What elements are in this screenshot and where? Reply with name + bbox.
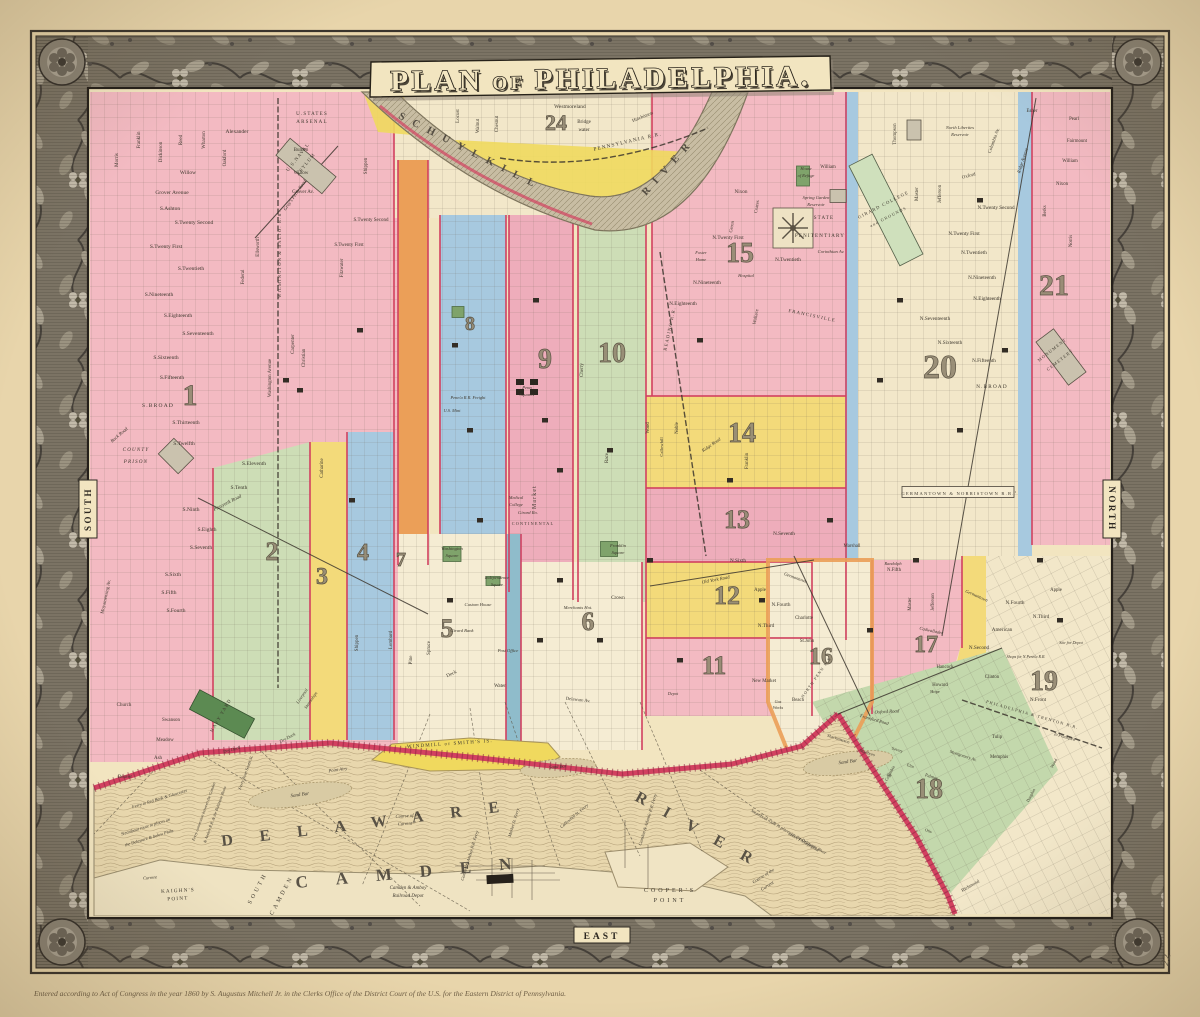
map-label: Willow (180, 170, 196, 176)
map-label: Bridge (577, 120, 591, 125)
map-label: N.Front (1030, 697, 1047, 703)
map-label: Pine (409, 655, 414, 665)
building-mark (1037, 558, 1043, 563)
map-label: Camden & Amboy (390, 886, 428, 891)
building-mark (557, 468, 563, 473)
map-label: Thompson (893, 123, 898, 145)
map-label: St.John (800, 639, 815, 644)
map-label: N.Twentieth (775, 257, 801, 263)
street-grid (347, 432, 394, 740)
building-mark (447, 598, 453, 603)
map-label: House (799, 166, 811, 171)
map-label: Apple (1050, 588, 1062, 593)
map-label: Dickinson (159, 141, 164, 162)
map-label: S.Twentieth (178, 266, 205, 272)
map-label: Wharton (202, 131, 207, 149)
building-mark (697, 338, 703, 343)
map-label: Callowhill (659, 437, 664, 457)
map-label: N.Fifteenth (972, 357, 996, 364)
building-mark (897, 298, 903, 303)
ward-number-11: 11 (702, 651, 727, 680)
map-label: N.Twentieth (961, 250, 987, 256)
map-content: 12345678910111213141516171819202124SCHUY… (90, 85, 1110, 918)
ward-number-13: 13 (724, 505, 750, 534)
map-label: College (509, 502, 523, 507)
building-mark (727, 478, 733, 483)
map-label: Randolph (883, 561, 902, 566)
map-label: Ash (154, 756, 163, 761)
map-label: Crown (611, 596, 625, 601)
map-canvas: 12345678910111213141516171819202124SCHUY… (0, 0, 1200, 1017)
map-label: PRISON (123, 460, 148, 465)
map-label: Independence (484, 575, 509, 580)
map-label: S.Eighth (197, 527, 216, 533)
map-label: Burden (294, 148, 309, 153)
street-grid (213, 442, 310, 740)
compass-east: EAST (584, 932, 621, 942)
map-label: Howard (932, 683, 948, 688)
building-mark (467, 428, 473, 433)
building-mark (533, 298, 539, 303)
map-label: Federal (241, 269, 246, 285)
map-label: WILMINGTON & BALTO. R.R. (277, 210, 282, 298)
map-label: S.Sixteenth (153, 355, 178, 361)
map-label: Reed (179, 134, 184, 145)
map-label: N.Second (969, 645, 990, 651)
landmark-black (487, 874, 513, 883)
map-label: Hospital (737, 273, 755, 278)
building-mark (877, 378, 883, 383)
map-label: Master (915, 187, 920, 201)
street-grid (521, 562, 642, 750)
map-label: Railroad Depot (391, 894, 424, 899)
map-label: S.Tenth (231, 485, 248, 491)
map-label: Esher (1027, 109, 1038, 114)
map-label: of Refuge (798, 173, 815, 178)
map-label: Catharine (320, 458, 325, 478)
map-label: Willow (294, 171, 309, 176)
map-label: Custom House (465, 602, 492, 607)
compass-north: NORTH (1107, 486, 1117, 531)
compass-south: SOUTH (83, 487, 93, 531)
map-label: N.Sixth (730, 558, 746, 564)
map-label: N.Eighteenth (973, 296, 1001, 302)
ward-number-2: 2 (266, 537, 279, 566)
map-label: N.Twenty First (712, 235, 744, 241)
map-label: water (578, 128, 589, 133)
building-mark (977, 198, 983, 203)
map-label: Memphis (990, 755, 1008, 760)
map-label: Washington Avenue (268, 359, 273, 397)
map-label: Home (695, 257, 707, 262)
map-label: N.Seventeenth (920, 316, 951, 322)
building-mark (759, 598, 765, 603)
map-label: U.S. Mint (444, 408, 462, 413)
map-label: Christian (302, 348, 307, 367)
map-label: Jefferson (931, 593, 936, 611)
map-label: S.Eighteenth (164, 313, 193, 319)
penitentiary-hub (790, 225, 796, 231)
map-label: Spring Garden (803, 195, 830, 200)
map-label: S.Twenty Second (354, 218, 389, 223)
map-label: William (1062, 159, 1078, 164)
map-label: Washington (441, 546, 463, 551)
map-label: Post Office (497, 648, 519, 653)
map-label: N.Sixteenth (938, 340, 963, 346)
map-label: N.Nineteenth (968, 275, 996, 281)
map-label: COOPER'S (644, 888, 696, 894)
ward-number-20: 20 (923, 349, 957, 386)
map-label: S.Seventeenth (182, 331, 214, 337)
map-label: Lombard (389, 630, 394, 649)
map-label: Franklin (137, 131, 142, 148)
region-orange-band (398, 160, 428, 565)
map-label: S.BROAD (142, 403, 174, 409)
ward-number-19: 19 (1030, 666, 1058, 697)
ward-number-15: 15 (726, 238, 754, 269)
map-label: Spruce (427, 640, 432, 655)
map-label: Jefferson (938, 184, 943, 203)
map-label: N.Fourth (772, 602, 791, 608)
ward-number-1: 1 (183, 379, 198, 412)
map-label: Church (117, 703, 132, 708)
ward-number-3: 3 (316, 564, 328, 590)
map-label: N.Third (1033, 614, 1050, 620)
building-mark (537, 638, 543, 643)
map-label: Swanson (162, 718, 181, 723)
ward-number-6: 6 (582, 607, 595, 636)
ward-number-17: 17 (914, 632, 938, 658)
ward-number-8: 8 (465, 313, 475, 335)
building-mark (1057, 618, 1063, 623)
map-label: Oakford (223, 149, 228, 166)
ward-number-10: 10 (598, 338, 626, 369)
map-label: Grover Av. (292, 190, 314, 195)
map-label: Current (398, 820, 413, 826)
map-label: Grover Avenue (155, 190, 189, 196)
title-banner: PLANOFPHILADELPHIA. PLANOFPHILADELPHIA. (370, 56, 834, 101)
map-label: Morris (115, 153, 120, 167)
building-mark (597, 638, 603, 643)
map-label: S.Ninth (183, 507, 200, 513)
map-label: N.Fourth (1006, 600, 1025, 606)
street-grid (440, 215, 506, 534)
building-mark (297, 388, 303, 393)
building-mark (677, 658, 683, 663)
map-label: STATE (814, 216, 835, 221)
map-label: Walnut (476, 118, 481, 133)
map-label: N.Fifth (887, 568, 902, 573)
map-label: Ellsworth (256, 237, 261, 257)
map-label: Reservoir (806, 202, 825, 207)
map-label: Hancock (936, 665, 954, 670)
map-label: American (992, 627, 1013, 633)
building-mark (542, 418, 548, 423)
map-label: Depot (667, 691, 679, 696)
map-label: Chesnut (495, 115, 500, 132)
map-label: Norris (1069, 235, 1074, 247)
map-label: Girard Ro. (518, 510, 538, 515)
map-label: Corinthian Av. (818, 249, 845, 254)
map-label: S.Sixth (165, 572, 181, 578)
ward-number-9: 9 (538, 344, 552, 375)
map-label: Franklin (609, 543, 627, 548)
map-label: S.Eleventh (242, 461, 266, 467)
map-label: COUNTY (123, 448, 150, 453)
map-label: Medical (508, 495, 524, 500)
building-mark (557, 578, 563, 583)
building-mark (647, 558, 653, 563)
copyright-line: Entered according to Act of Congress in … (33, 989, 566, 998)
map-label: Noble (675, 422, 680, 434)
map-label: Master (908, 597, 913, 611)
map-label: Fitzwater (340, 258, 345, 277)
building-mark (283, 378, 289, 383)
landmark-green (452, 307, 464, 318)
landmark-gray (830, 190, 846, 203)
map-label: Race (605, 452, 610, 463)
map-label: Merchants Hot. (563, 605, 593, 610)
map-label: GERMANTOWN & NORRISTOWN R.R. (901, 491, 1014, 496)
map-label: PENITENTIARY (795, 234, 845, 239)
map-label: Beaver (118, 775, 132, 780)
map-label: N.Twenty Second (977, 205, 1015, 211)
map-label: Marshall (843, 544, 861, 549)
ward-number-4: 4 (357, 540, 369, 566)
map-label: Locust (456, 109, 461, 123)
building-mark (867, 628, 873, 633)
building-mark (957, 428, 963, 433)
map-label: S.Seventh (190, 545, 212, 551)
map-label: Hope (930, 689, 940, 694)
map-label: Water (494, 684, 506, 689)
map-label: Works (773, 705, 784, 710)
map-label: Pearl (1069, 117, 1080, 122)
map-label: Nixon (735, 189, 748, 195)
map-label: William (820, 165, 836, 170)
map-label: CONTINENTAL (512, 521, 554, 526)
map-label: Cherry (580, 363, 585, 377)
map-label: Clinton (985, 675, 1000, 680)
ward-number-7: 7 (396, 549, 406, 571)
map-label: Fairmount (1067, 139, 1088, 144)
map-label: Carpenter (291, 334, 296, 354)
map-label: Charlotte (795, 616, 813, 621)
map-label: S.Twenty First (150, 244, 183, 250)
map-title: PLANOFPHILADELPHIA. (390, 60, 811, 97)
map-label: Shops for N.Penn'a R.R. (1007, 654, 1046, 659)
building-mark (349, 498, 355, 503)
map-label: S.Twelfth (173, 440, 195, 447)
map-label: ARSENAL (296, 120, 327, 125)
map-label: New Market (752, 679, 777, 684)
map-label: Berks (1043, 205, 1048, 216)
map-label: S.Twenty Second (175, 220, 214, 226)
map-label: S.Fifth (161, 589, 176, 596)
map-label: Nixon (1056, 182, 1069, 187)
ward-number-18: 18 (915, 774, 943, 805)
building-mark (452, 343, 458, 348)
map-label: Meadow (156, 738, 174, 743)
map-label: Tulip (992, 735, 1003, 740)
map-label: N.Twenty First (948, 231, 980, 237)
map-label: Foster (694, 250, 707, 255)
ward-number-21: 21 (1039, 269, 1069, 302)
building-mark (607, 448, 613, 453)
map-label: N.Nineteenth (693, 280, 721, 286)
ward-number-24: 24 (545, 110, 567, 135)
map-label: Square (446, 553, 459, 558)
map-label: Wood (646, 422, 651, 434)
map-label: Shippen (355, 634, 360, 651)
map-label: Girard Bank (450, 628, 474, 633)
map-label: S.Fifteenth (160, 374, 185, 381)
map-page: 12345678910111213141516171819202124SCHUY… (0, 0, 1200, 1017)
ward-number-12: 12 (714, 581, 740, 610)
building-mark (1002, 348, 1008, 353)
map-label: N.BROAD (976, 384, 1008, 390)
map-label: Penn'a R.R. Freight (450, 395, 487, 400)
map-label: Gas (775, 699, 782, 704)
map-label: Square (491, 582, 503, 587)
building-mark (913, 558, 919, 563)
ward-number-14: 14 (728, 418, 756, 449)
map-label: S.Ashton (160, 206, 181, 212)
map-label: Apple (754, 588, 766, 593)
map-label: Shippen (364, 157, 369, 174)
map-label: Alexander (226, 129, 249, 135)
map-label: Squares (520, 392, 535, 397)
map-label: North Liberties (945, 125, 974, 130)
map-label: Market (532, 485, 538, 509)
map-label: S.Fourth (166, 608, 185, 614)
map-label: S.Nineteenth (145, 292, 174, 298)
map-label: N.Seventh (773, 531, 795, 537)
map-label: POINT (167, 895, 189, 902)
building-mark (357, 328, 363, 333)
map-label: POINT (654, 898, 687, 904)
map-label: Penn (521, 385, 532, 390)
map-label: Square (612, 550, 625, 555)
map-label: Franklin (745, 452, 750, 469)
map-label: N.Third (758, 623, 775, 629)
building-mark (477, 518, 483, 523)
map-label: S.Thirteenth (172, 420, 200, 426)
map-label: Westmoreland (554, 104, 586, 110)
building-mark (827, 518, 833, 523)
map-label: S.Twenty First (334, 243, 364, 248)
landmark-gray (907, 120, 921, 140)
map-label: U.STATES (296, 112, 328, 117)
map-label: N.Eighteenth (669, 301, 697, 307)
map-label: Site for Depot (1059, 640, 1083, 645)
map-label: Reservoir (950, 132, 969, 137)
